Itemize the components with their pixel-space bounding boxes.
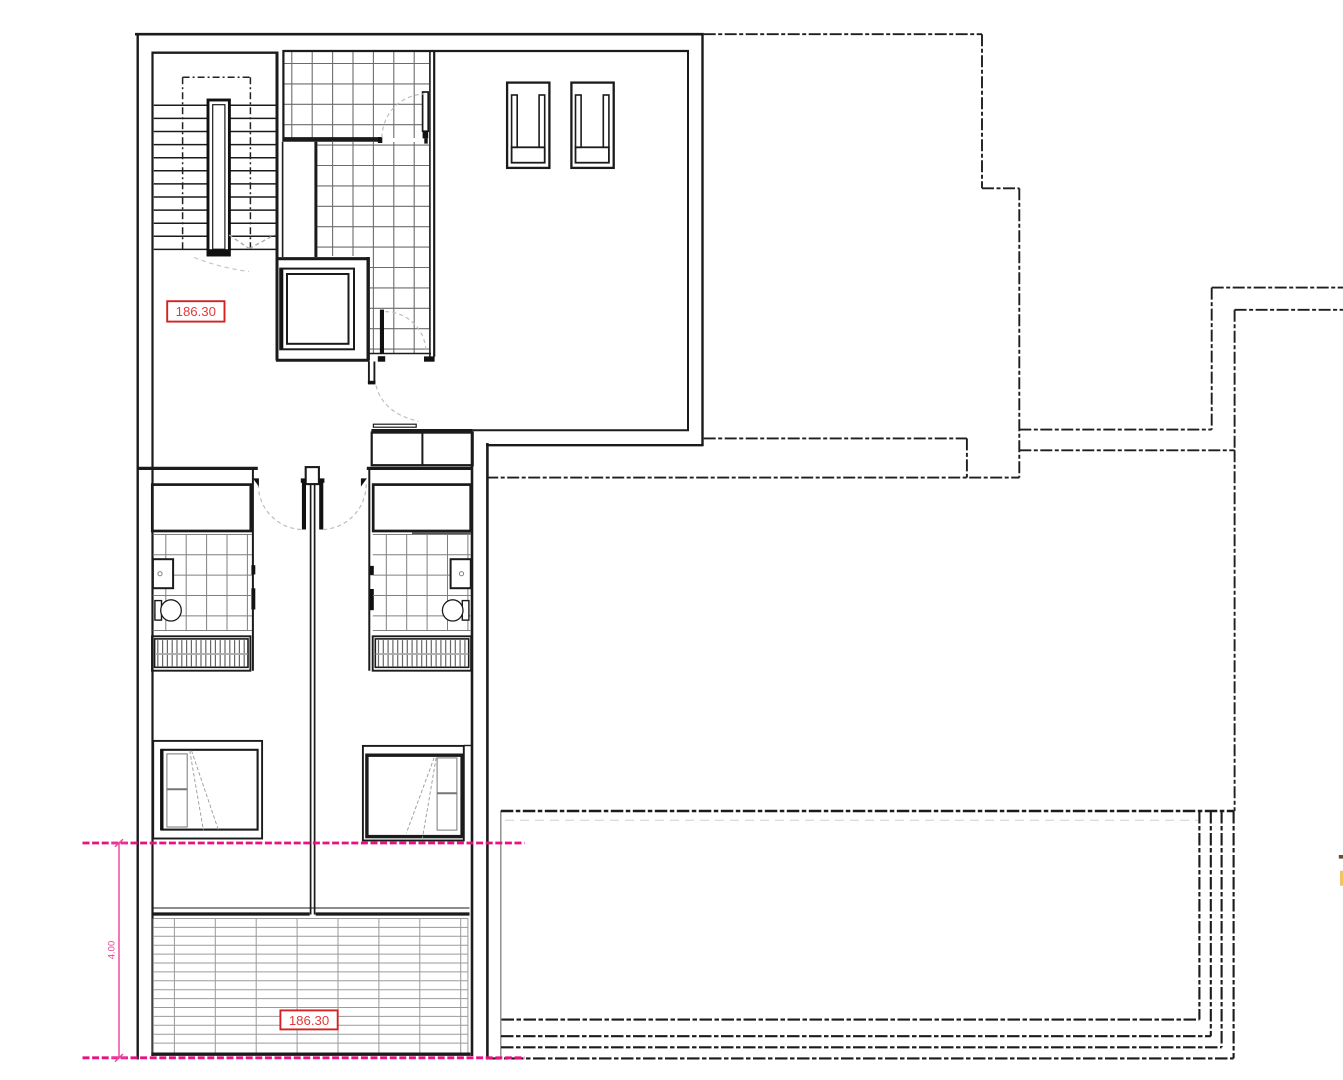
svg-text:4.00: 4.00 (107, 941, 118, 960)
svg-text:186.30: 186.30 (289, 1013, 329, 1028)
svg-text:186.30: 186.30 (176, 304, 216, 319)
